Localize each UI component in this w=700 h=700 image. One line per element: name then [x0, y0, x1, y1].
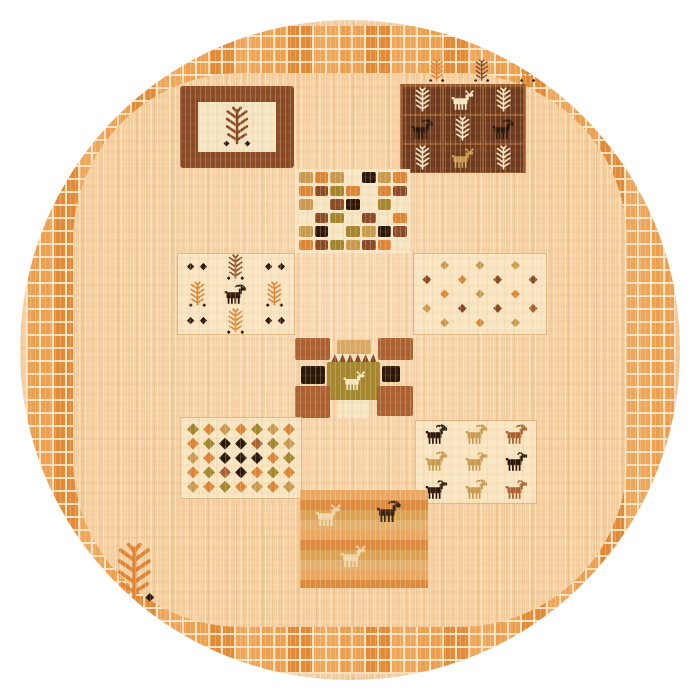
diamond-icon — [187, 481, 199, 493]
dot-icon — [186, 262, 208, 273]
checker-cell — [330, 213, 344, 224]
checker-cell — [362, 226, 376, 237]
motif-cell — [178, 254, 217, 281]
checker-cell — [299, 172, 313, 183]
diamond-icon — [283, 466, 295, 478]
diamond-icon — [203, 423, 215, 435]
goat-icon — [463, 479, 490, 500]
goat-icon — [409, 119, 436, 140]
tree-icon — [112, 542, 157, 604]
tree-icon — [412, 145, 433, 172]
tree-icon — [264, 281, 285, 308]
horse-icon — [449, 148, 476, 169]
motif-cell — [255, 254, 294, 281]
motif-cell — [444, 145, 483, 172]
motif-cell — [255, 281, 294, 308]
motif-cell — [444, 116, 483, 143]
motif-cell — [217, 254, 256, 281]
diamond-icon — [235, 481, 247, 493]
tree-icon — [452, 116, 473, 143]
diamond-icon — [283, 423, 295, 435]
diamond-icon — [267, 466, 279, 478]
motif-cell — [456, 448, 496, 475]
diamond-icon — [251, 466, 263, 478]
checker-cell — [299, 226, 313, 237]
diamond-icon — [511, 261, 520, 270]
diamond-icon — [422, 304, 431, 313]
motif-cell — [496, 448, 536, 475]
motif-cell — [178, 281, 217, 308]
deer-icon — [449, 90, 476, 111]
motif-cell — [484, 145, 523, 172]
diamond-icon — [511, 289, 520, 298]
diamond-icon — [251, 438, 263, 450]
diamond-icon — [203, 452, 215, 464]
dot-icon — [186, 316, 208, 327]
diamond-icon — [493, 304, 502, 313]
checker-cell — [362, 186, 376, 197]
checker-cell — [315, 199, 329, 210]
medallion-bottom-block — [337, 400, 369, 418]
diamond-icon — [187, 423, 199, 435]
checker-cell — [299, 240, 313, 251]
diamond-icon — [251, 452, 263, 464]
center-medallion — [295, 338, 413, 420]
diamond-icon — [219, 452, 231, 464]
lone-tree — [112, 538, 170, 604]
goat-icon — [423, 424, 450, 445]
checker-cell — [330, 240, 344, 251]
checker-cell — [362, 213, 376, 224]
checker-cell — [315, 226, 329, 237]
tree-icon — [225, 254, 246, 281]
diamond-icon — [422, 275, 431, 284]
diamond-icon — [440, 289, 449, 298]
checker-cell — [393, 226, 407, 237]
motif-cell — [178, 308, 217, 335]
diamond-icon — [440, 318, 449, 327]
checker-cell — [346, 186, 360, 197]
diamond-icon — [267, 438, 279, 450]
product-photo — [0, 0, 700, 700]
diamond-icon — [235, 466, 247, 478]
goat-sprite — [374, 500, 404, 523]
motif-cell — [217, 281, 256, 308]
horse-icon — [338, 545, 368, 568]
sheep-icon — [463, 451, 490, 472]
motif-cell — [403, 87, 442, 114]
checker-cell — [315, 172, 329, 183]
tree-icon — [519, 59, 536, 83]
checker-cell — [393, 199, 407, 210]
trees-goat-panel — [177, 253, 295, 335]
checker-cell — [346, 240, 360, 251]
diamond-icon — [235, 452, 247, 464]
checker-cell — [315, 186, 329, 197]
pasture-panel — [300, 490, 428, 588]
checker-cell — [315, 213, 329, 224]
diamond-icon — [458, 304, 467, 313]
medallion-center-block — [327, 362, 380, 400]
motif-cell — [255, 308, 294, 335]
goat-icon — [463, 424, 490, 445]
medallion-side-block — [382, 366, 400, 382]
checker-cell — [346, 199, 360, 210]
diamond-icon — [219, 438, 231, 450]
checker-cell — [393, 213, 407, 224]
medallion-corner-block — [378, 338, 413, 360]
diamond-icon — [493, 275, 502, 284]
checker-cell — [378, 240, 392, 251]
animal-tree-grid-panel — [400, 84, 526, 173]
checker-cell — [346, 226, 360, 237]
diamond-icon — [235, 438, 247, 450]
sheep-icon — [503, 479, 530, 500]
diamond-icon — [203, 466, 215, 478]
checker-cell — [378, 186, 392, 197]
checker-cell — [362, 240, 376, 251]
motif-cell — [217, 308, 256, 335]
diamond-icon — [219, 481, 231, 493]
herd-panel — [415, 420, 537, 504]
diamond-icon — [251, 423, 263, 435]
motif-cell — [484, 116, 523, 143]
checker-cell — [299, 199, 313, 210]
tree-icon — [473, 59, 490, 83]
diamond-icon — [529, 304, 538, 313]
diamond-icon — [267, 423, 279, 435]
checker-cell — [393, 240, 407, 251]
motif-cell — [444, 87, 483, 114]
medallion-top-block — [337, 340, 371, 355]
medallion-side-block — [301, 366, 325, 384]
diamond-icon — [187, 438, 199, 450]
motif-cell — [416, 448, 456, 475]
diamond-icon — [251, 481, 263, 493]
diamond-icon — [529, 275, 538, 284]
horse-sprite — [338, 545, 368, 568]
checker-cell — [330, 186, 344, 197]
checker-cell — [330, 226, 344, 237]
motif-cell — [456, 421, 496, 448]
tree-icon — [222, 106, 252, 148]
scatter-diamonds-panel — [413, 253, 547, 335]
dot-icon — [264, 316, 286, 327]
medallion-corner-block — [295, 386, 330, 418]
checker-cell — [330, 199, 344, 210]
medallion-corner-block — [377, 386, 413, 416]
deer-icon — [341, 371, 367, 391]
checker-cell — [346, 213, 360, 224]
goat-icon — [423, 451, 450, 472]
dense-diamonds-panel — [180, 417, 302, 499]
diamond-icon — [219, 466, 231, 478]
goat-icon — [503, 424, 530, 445]
goat-icon — [374, 500, 404, 523]
diamond-icon — [475, 289, 484, 298]
checker-cell — [330, 172, 344, 183]
motif-cell — [496, 476, 536, 503]
checker-cell — [315, 240, 329, 251]
diamond-icon — [203, 481, 215, 493]
checker-cell — [378, 226, 392, 237]
diamond-icon — [267, 481, 279, 493]
motif-cell — [496, 421, 536, 448]
goat-icon — [490, 119, 517, 140]
diamond-icon — [203, 438, 215, 450]
checker-cell — [362, 172, 376, 183]
diamond-icon — [440, 261, 449, 270]
diamond-icon — [187, 466, 199, 478]
round-rug — [20, 20, 680, 680]
motif-cell — [416, 421, 456, 448]
tree-icon — [493, 145, 514, 172]
framed-tree-panel — [180, 86, 294, 168]
diamond-icon — [235, 423, 247, 435]
checker-cell — [378, 199, 392, 210]
checker-cell — [393, 172, 407, 183]
motif-cell — [403, 145, 442, 172]
diamond-icon — [283, 452, 295, 464]
tree-icon — [493, 87, 514, 114]
tree-icon — [412, 87, 433, 114]
sheep-icon — [503, 451, 530, 472]
checker-cell — [299, 213, 313, 224]
diamond-icon — [475, 261, 484, 270]
checker-cell — [362, 199, 376, 210]
horse-sprite — [313, 504, 343, 527]
diamond-icon — [283, 438, 295, 450]
frame-inner — [198, 102, 276, 152]
checker-cell — [378, 213, 392, 224]
checkerboard-panel — [296, 169, 410, 253]
goat-icon — [222, 284, 249, 305]
motif-cell — [484, 87, 523, 114]
checker-cell — [393, 186, 407, 197]
diamond-icon — [219, 423, 231, 435]
motif-cell — [403, 116, 442, 143]
diamond-icon — [475, 318, 484, 327]
motif-cell — [456, 476, 496, 503]
checker-cell — [299, 186, 313, 197]
diamond-icon — [267, 452, 279, 464]
checker-cell — [378, 172, 392, 183]
horse-icon — [313, 504, 343, 527]
dot-icon — [264, 262, 286, 273]
diamond-icon — [187, 452, 199, 464]
diamond-icon — [283, 481, 295, 493]
tree-sprigs-row — [428, 55, 536, 83]
tree-icon — [428, 59, 445, 83]
medallion-corner-block — [295, 338, 330, 360]
tree-icon — [225, 308, 246, 335]
diamond-icon — [458, 275, 467, 284]
diamond-icon — [511, 318, 520, 327]
tree-icon — [187, 281, 208, 308]
checker-cell — [346, 172, 360, 183]
